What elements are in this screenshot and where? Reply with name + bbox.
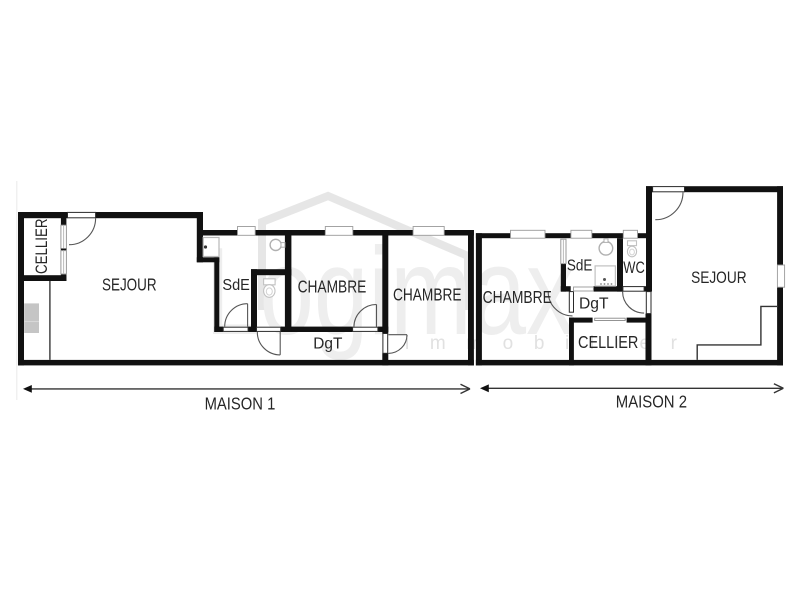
svg-text:MAISON 2: MAISON 2 <box>616 392 687 412</box>
svg-text:DgT: DgT <box>579 295 609 312</box>
svg-text:MAISON 1: MAISON 1 <box>205 394 276 414</box>
svg-text:DgT: DgT <box>313 336 342 353</box>
svg-text:CHAMBRE: CHAMBRE <box>483 287 552 307</box>
svg-text:SEJOUR: SEJOUR <box>691 268 747 287</box>
svg-text:WC: WC <box>623 258 645 277</box>
svg-text:SdE: SdE <box>567 257 593 274</box>
svg-text:CHAMBRE: CHAMBRE <box>298 276 367 296</box>
svg-text:SEJOUR: SEJOUR <box>102 274 157 294</box>
svg-text:CELLIER: CELLIER <box>578 332 638 352</box>
svg-text:CHAMBRE: CHAMBRE <box>393 285 462 305</box>
svg-text:SdE: SdE <box>222 277 250 294</box>
svg-text:CELLIER: CELLIER <box>32 219 51 275</box>
